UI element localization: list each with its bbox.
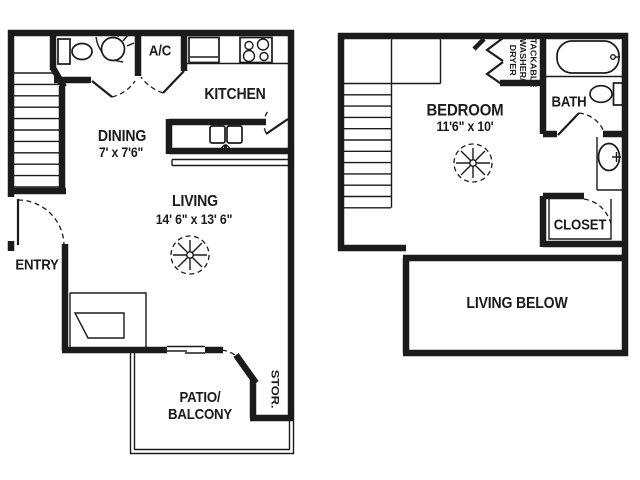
floor2-wall-notch (474, 39, 484, 49)
room-label-bedroom: BEDROOM (427, 100, 504, 119)
room-label-storage: STOR. (269, 370, 282, 409)
floor-plan-svg (0, 0, 640, 480)
room-label-living: LIVING (172, 193, 218, 211)
room-dims-dining: 7' x 7'6" (99, 145, 143, 161)
room-label-patio-balcony: PATIO/ BALCONY (168, 390, 232, 424)
room-dims-living: 14' 6" x 13' 6" (156, 212, 233, 228)
floor2-vanity-sink (597, 137, 622, 190)
room-label-kitchen: KITCHEN (204, 86, 265, 104)
floor2-laundry-bifold-doors (487, 38, 503, 85)
floor1-ceiling-fan-symbol (171, 236, 209, 274)
floor1-fireplace (70, 293, 146, 347)
room-dims-bedroom: 11'6" x 10' (436, 119, 493, 135)
room-label-entry: ENTRY (15, 258, 58, 275)
room-label-washer-dryer: STACKABLE WASHER/ DRYER (507, 33, 538, 88)
floor2-ceiling-fan-symbol (454, 144, 492, 182)
floor1-stairs (14, 73, 59, 187)
floor2-stairs (344, 40, 441, 208)
room-label-closet: CLOSET (554, 218, 606, 235)
floor2-bath-fixtures (546, 41, 623, 135)
room-label-living-below: LIVING BELOW (466, 295, 567, 313)
room-label-ac: A/C (149, 44, 171, 61)
room-label-bath: BATH (552, 95, 587, 112)
floor-plan-canvas: A/C KITCHEN DINING 7' x 7'6" LIVING 14' … (0, 0, 640, 480)
floor1-doors (18, 71, 288, 358)
